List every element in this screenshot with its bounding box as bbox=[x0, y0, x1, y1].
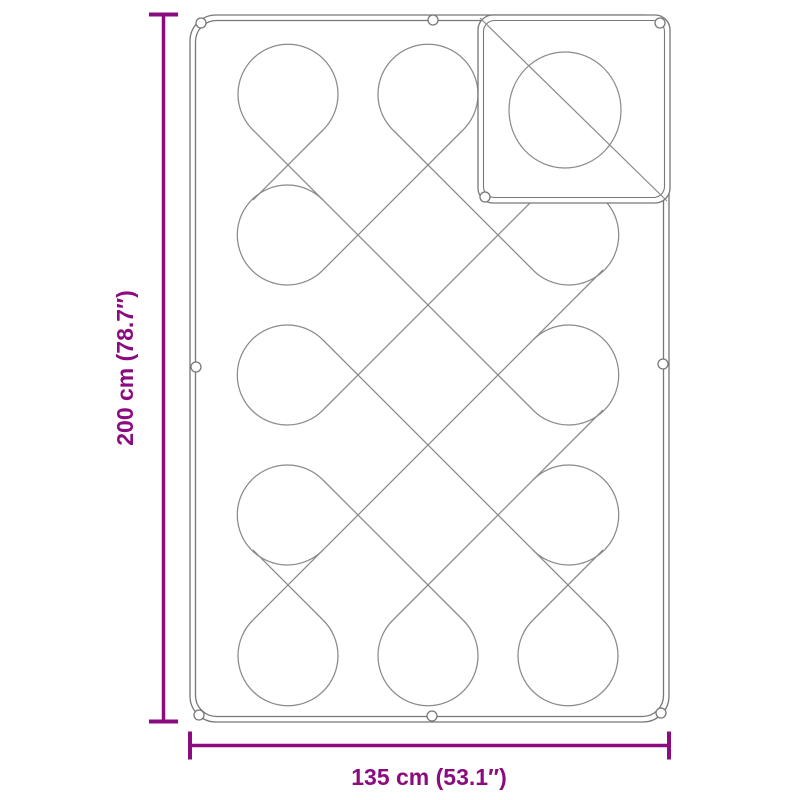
grommet-icon bbox=[194, 710, 204, 720]
grommet-icon bbox=[427, 711, 437, 721]
flap-outer-edge bbox=[478, 15, 670, 203]
width-dimension-label: 135 cm (53.1″) bbox=[319, 762, 539, 792]
grommet-icon bbox=[480, 192, 490, 202]
width-dimension-line bbox=[190, 732, 669, 760]
height-dimension-line bbox=[149, 15, 178, 722]
product-dimension-diagram: 200 cm (78.7″) 135 cm (53.1″) bbox=[0, 0, 800, 800]
grommet-icon bbox=[656, 708, 666, 718]
grommet-icon bbox=[191, 362, 201, 372]
grommet-icon bbox=[658, 359, 668, 369]
folded-corner-flap bbox=[478, 15, 670, 203]
grommet-icon bbox=[196, 18, 206, 28]
grommet-icon bbox=[655, 18, 665, 28]
grommet-icon bbox=[428, 15, 438, 25]
height-dimension-label: 200 cm (78.7″) bbox=[110, 283, 140, 453]
